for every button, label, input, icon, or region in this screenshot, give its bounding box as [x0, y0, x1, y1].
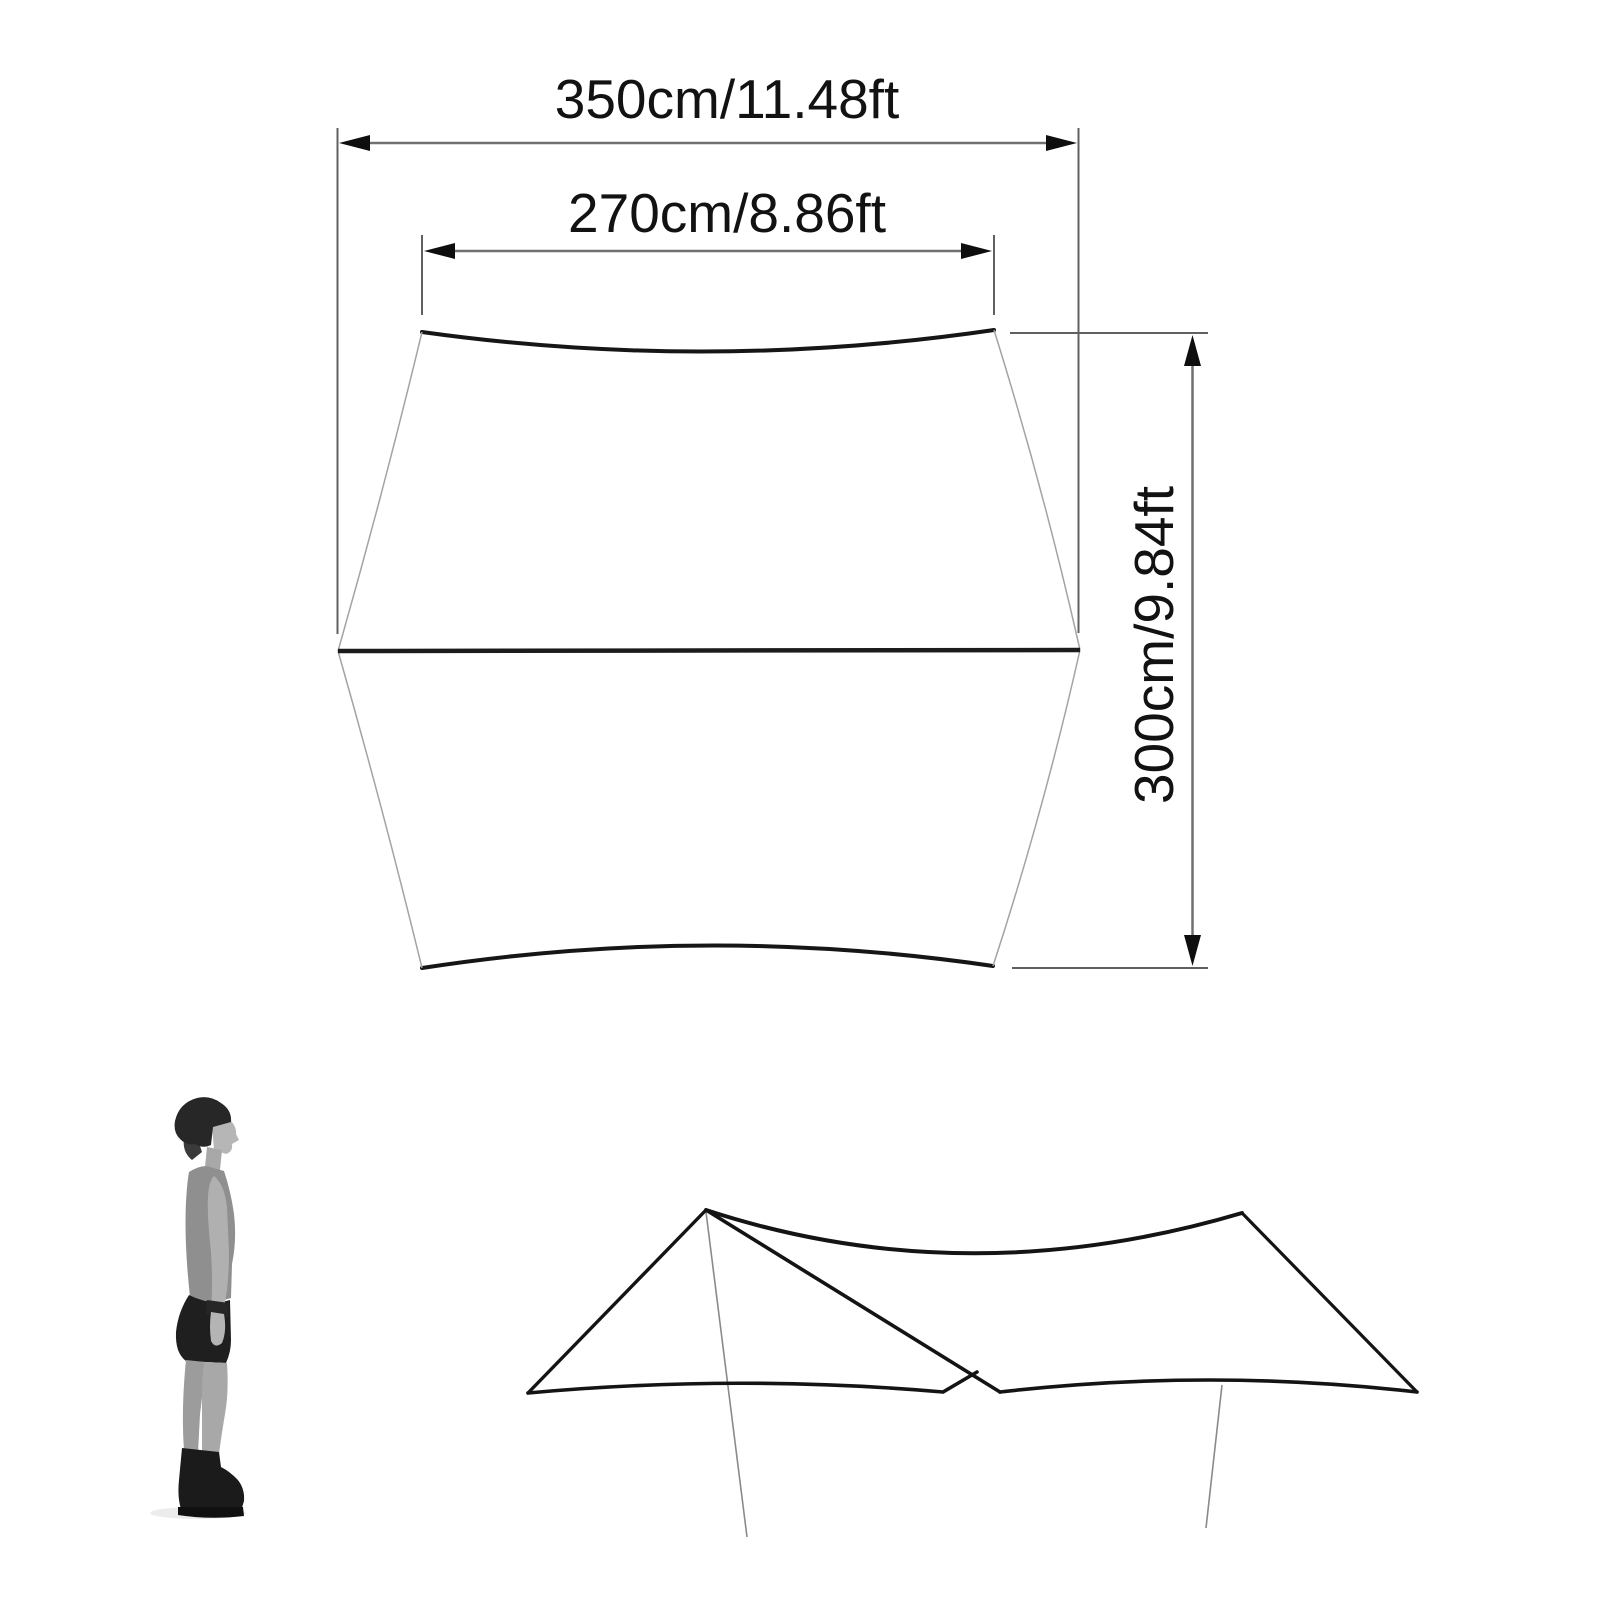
3d-ridge-curve [706, 1210, 1242, 1253]
arrow-up-icon [1184, 335, 1201, 366]
depth-label: 300cm/9.84ft [1123, 486, 1185, 804]
inner-width-label: 270cm/8.86ft [568, 182, 886, 244]
person-back-leg [183, 1360, 205, 1453]
3d-left-edge [528, 1210, 706, 1393]
top-view-top-edge [422, 330, 994, 352]
dimension-inner-width: 270cm/8.86ft [422, 182, 994, 315]
top-view-ridge-line [338, 650, 1080, 651]
3d-right-edge [1242, 1213, 1417, 1392]
arrow-left-icon [339, 135, 370, 151]
outer-width-label: 350cm/11.48ft [555, 68, 899, 130]
left-pole-line [706, 1212, 747, 1537]
arrow-left-icon [424, 243, 455, 259]
top-view-left-lower-edge [338, 651, 422, 968]
tarp-3d-view [528, 1210, 1417, 1537]
top-view-bottom-edge [422, 945, 993, 968]
arrow-down-icon [1184, 935, 1201, 966]
person-figure [150, 1097, 246, 1519]
person-boot-sole [178, 1507, 244, 1518]
product-dimension-diagram: 350cm/11.48ft 270cm/8.86ft 300cm/9.84ft [0, 0, 1600, 1600]
top-view-right-lower-edge [993, 650, 1080, 966]
3d-left-hem [528, 1372, 977, 1393]
person-front-leg [202, 1362, 228, 1454]
person-hand [210, 1312, 225, 1346]
3d-center-edge [706, 1210, 1000, 1392]
person-boots [178, 1448, 244, 1514]
right-pole-line [1206, 1385, 1222, 1528]
tarp-top-view [338, 330, 1080, 968]
diagram-svg: 350cm/11.48ft 270cm/8.86ft 300cm/9.84ft [0, 0, 1600, 1600]
arrow-right-icon [1046, 135, 1077, 151]
top-view-right-upper-edge [994, 330, 1080, 650]
arrow-right-icon [961, 243, 992, 259]
top-view-left-upper-edge [338, 332, 422, 651]
3d-right-hem [1000, 1380, 1417, 1392]
